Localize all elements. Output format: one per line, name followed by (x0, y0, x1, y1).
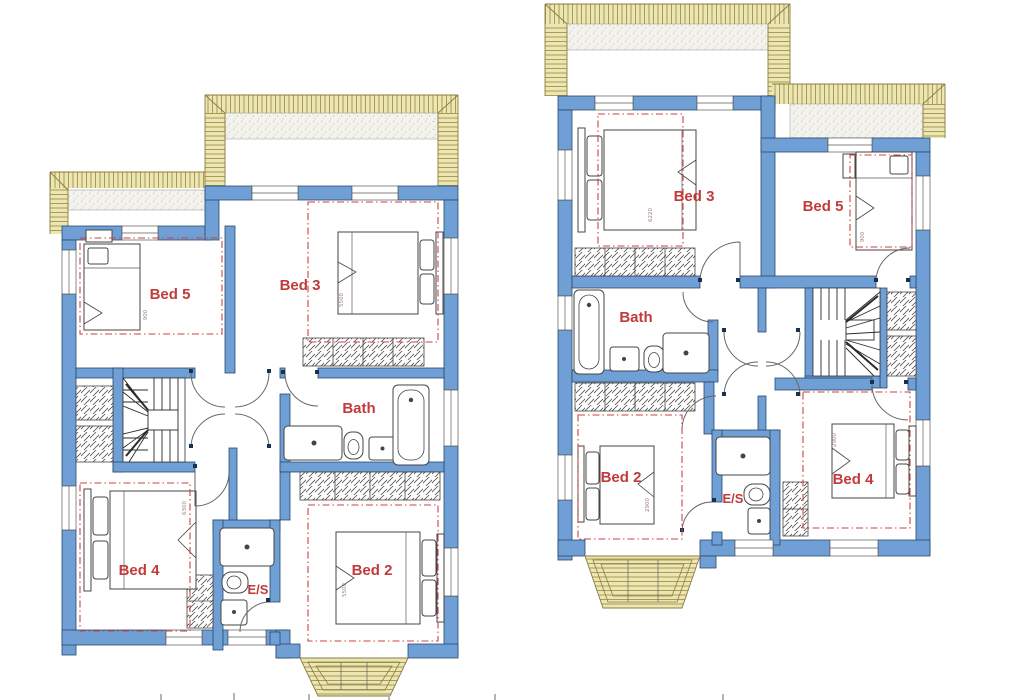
room-label-bath: Bath (619, 309, 652, 326)
left-ensuite-fixtures (220, 528, 274, 625)
shower-tray (220, 528, 274, 566)
washbasin (748, 508, 770, 534)
dimension-text: 900 (143, 309, 149, 320)
cropped-caption-marks (160, 693, 724, 700)
bathtub (393, 385, 429, 465)
shower-tray (716, 437, 770, 475)
floor-plan-sheet: Bed 5 Bed 3 Bath Bed 4 Bed 2 E/S 900 550… (0, 0, 1012, 700)
toilet (344, 432, 363, 459)
left-floor-plan: Bed 5 Bed 3 Bath Bed 4 Bed 2 E/S 900 550… (50, 95, 458, 696)
room-label-bed3: Bed 3 (674, 188, 715, 205)
left-bathroom-fixtures (284, 385, 429, 465)
left-stairs (123, 378, 185, 462)
room-label-ensuite: E/S (723, 491, 744, 506)
room-label-bed2: Bed 2 (601, 469, 642, 486)
right-ensuite-fixtures (716, 437, 770, 534)
room-label-bed4: Bed 4 (119, 562, 161, 579)
room-label-bed5: Bed 5 (150, 286, 191, 303)
right-bathroom-fixtures (574, 290, 709, 374)
right-dormer-secondary (772, 84, 945, 138)
left-dormer-small (50, 172, 215, 234)
washbasin (610, 347, 639, 371)
dimension-text: 2900 (832, 433, 838, 447)
shower-tray (284, 426, 342, 460)
washbasin (369, 437, 396, 460)
bed-3-double-bed (338, 232, 443, 314)
right-stairs (813, 288, 880, 376)
toilet (222, 572, 248, 593)
toilet (644, 346, 664, 372)
shower-tray (663, 333, 709, 373)
room-label-bed2: Bed 2 (352, 562, 393, 579)
right-floor-plan: Bed 3 Bed 5 Bath Bed 2 E/S Bed 4 6220 90… (545, 4, 945, 608)
bed-3-double-bed (578, 128, 696, 232)
room-label-ensuite: E/S (248, 582, 269, 597)
bed-5-single-bed (84, 230, 140, 330)
toilet (744, 484, 770, 505)
floor-plan-drawing: Bed 5 Bed 3 Bath Bed 4 Bed 2 E/S 900 550… (0, 0, 1012, 700)
dimension-text: 6300 (182, 501, 188, 515)
left-dormer-large (205, 95, 458, 186)
room-label-bed5: Bed 5 (803, 198, 844, 215)
dimension-text: 5500 (339, 293, 345, 307)
dimension-text: 2900 (645, 498, 651, 512)
dimension-text: 900 (860, 231, 866, 242)
room-label-bed3: Bed 3 (280, 277, 321, 294)
right-bay-window (585, 556, 700, 608)
bed-5-single-bed (843, 152, 912, 250)
washbasin (221, 600, 247, 625)
bathtub (574, 290, 604, 374)
dimension-text: 5500 (342, 583, 348, 597)
room-label-bath: Bath (342, 400, 375, 417)
dimension-text: 6220 (648, 208, 654, 222)
right-dormer-large (545, 4, 790, 96)
room-label-bed4: Bed 4 (833, 471, 875, 488)
left-bay-window (300, 658, 408, 696)
